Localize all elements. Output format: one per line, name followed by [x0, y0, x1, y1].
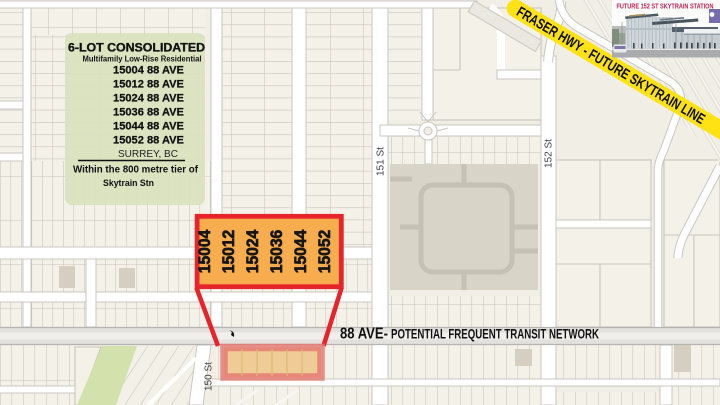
svg-text:Skytrain Stn: Skytrain Stn: [103, 178, 154, 189]
svg-text:151 St: 151 St: [376, 147, 387, 176]
svg-text:15052 88 AVE: 15052 88 AVE: [113, 134, 184, 146]
svg-text:6-LOT CONSOLIDATED: 6-LOT CONSOLIDATED: [68, 41, 205, 55]
svg-text:15036: 15036: [268, 230, 286, 274]
svg-text:FUTURE 152 ST SKYTRAIN STATION: FUTURE 152 ST SKYTRAIN STATION: [617, 2, 714, 11]
svg-text:15044: 15044: [292, 229, 310, 273]
svg-text:15012 88 AVE: 15012 88 AVE: [113, 78, 184, 90]
svg-text:15004 88 AVE: 15004 88 AVE: [113, 64, 184, 76]
svg-text:Within the 800 metre tier of: Within the 800 metre tier of: [73, 165, 199, 176]
svg-text:SURREY, BC: SURREY, BC: [118, 149, 178, 160]
svg-text:15044 88 AVE: 15044 88 AVE: [113, 120, 184, 132]
svg-text:15052: 15052: [316, 230, 334, 274]
svg-text:15036 88 AVE: 15036 88 AVE: [113, 106, 184, 118]
svg-text:152 St: 152 St: [544, 139, 555, 168]
svg-text:15024 88 AVE: 15024 88 AVE: [113, 92, 184, 104]
svg-text:88 AVE-: 88 AVE-: [340, 326, 388, 343]
svg-text:15024: 15024: [244, 229, 262, 273]
svg-text:POTENTIAL FREQUENT TRANSIT NET: POTENTIAL FREQUENT TRANSIT NETWORK: [391, 327, 599, 342]
svg-text:15004: 15004: [196, 229, 214, 273]
svg-text:150 St: 150 St: [204, 362, 215, 391]
svg-text:15012: 15012: [220, 230, 238, 274]
svg-text:Multifamily Low-Rise Residenti: Multifamily Low-Rise Residential: [83, 54, 202, 63]
